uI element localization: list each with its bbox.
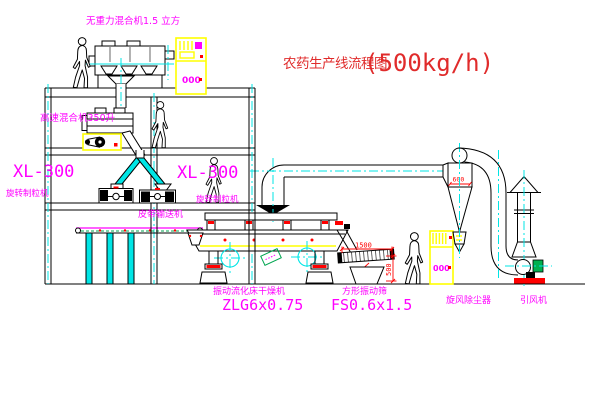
exhaust-duct <box>250 158 452 222</box>
dryer-trough <box>187 230 348 251</box>
control-cabinet-cyclone: 000 <box>430 231 453 284</box>
granulator-right-machine <box>140 184 176 203</box>
label-granulator-right: 旋转制粒机 <box>196 194 239 205</box>
worker-figure-roof <box>73 38 90 88</box>
label-granulator-right-model: XL-300 <box>177 163 238 183</box>
worker-figure-floor2 <box>152 102 168 148</box>
label-high-speed-mixer: 高速混合机350升 <box>40 112 116 124</box>
label-belt-conveyor: 皮带输送机 <box>138 208 183 220</box>
dim-cyclone-width: 600 <box>453 176 465 184</box>
dryer-foot-right <box>306 251 333 283</box>
label-gravity-mixer: 无重力混合机1.5 立方 <box>86 15 180 27</box>
drawing-title-capacity: (500kg/h) <box>364 49 494 77</box>
screen-base <box>350 267 384 284</box>
process-flow-diagram: 000 <box>0 0 600 403</box>
indicator-lamp <box>449 236 452 239</box>
label-dryer-model: ZLG6x0.75 <box>222 296 303 314</box>
panel2-display: 000 <box>433 264 450 273</box>
label-granulator-left-model: XL-300 <box>13 162 74 182</box>
dryer-foot-left <box>200 251 227 283</box>
label-fan: 引风机 <box>520 294 547 306</box>
granulator-left-machine <box>99 184 133 203</box>
conveyor-leg <box>107 233 113 284</box>
control-cabinet-top: 000 <box>176 38 206 94</box>
pulley-small <box>85 139 90 144</box>
worker-figure-screen <box>405 233 422 284</box>
label-cyclone: 旋风除尘器 <box>446 294 491 306</box>
label-granulator-left: 旋转制粒机 <box>6 188 49 199</box>
indicator-lamp <box>199 78 202 81</box>
indicator-lamp <box>448 266 451 269</box>
fan-base <box>514 278 545 284</box>
label-screen-model: FS0.6x1.5 <box>331 296 412 314</box>
indicator-lamp <box>200 55 203 58</box>
conveyor-leg <box>128 233 134 284</box>
fluid-bed-dryer-machine <box>187 213 357 283</box>
dryer-top-frame <box>205 213 337 220</box>
indicator-block <box>195 42 202 49</box>
cad-drawing-page: 000 <box>0 0 600 403</box>
dim-screen-width: 500 <box>385 263 393 276</box>
belt-conveyor-machine <box>76 228 204 284</box>
dim-screen-length: 1500 <box>355 242 372 250</box>
induced-draft-fan-machine <box>505 260 552 284</box>
panel1-display: 000 <box>182 76 201 86</box>
vibrating-screen-machine: 1500 500 <box>338 242 397 285</box>
conveyor-leg <box>86 233 92 284</box>
vibration-mounts <box>207 220 329 230</box>
